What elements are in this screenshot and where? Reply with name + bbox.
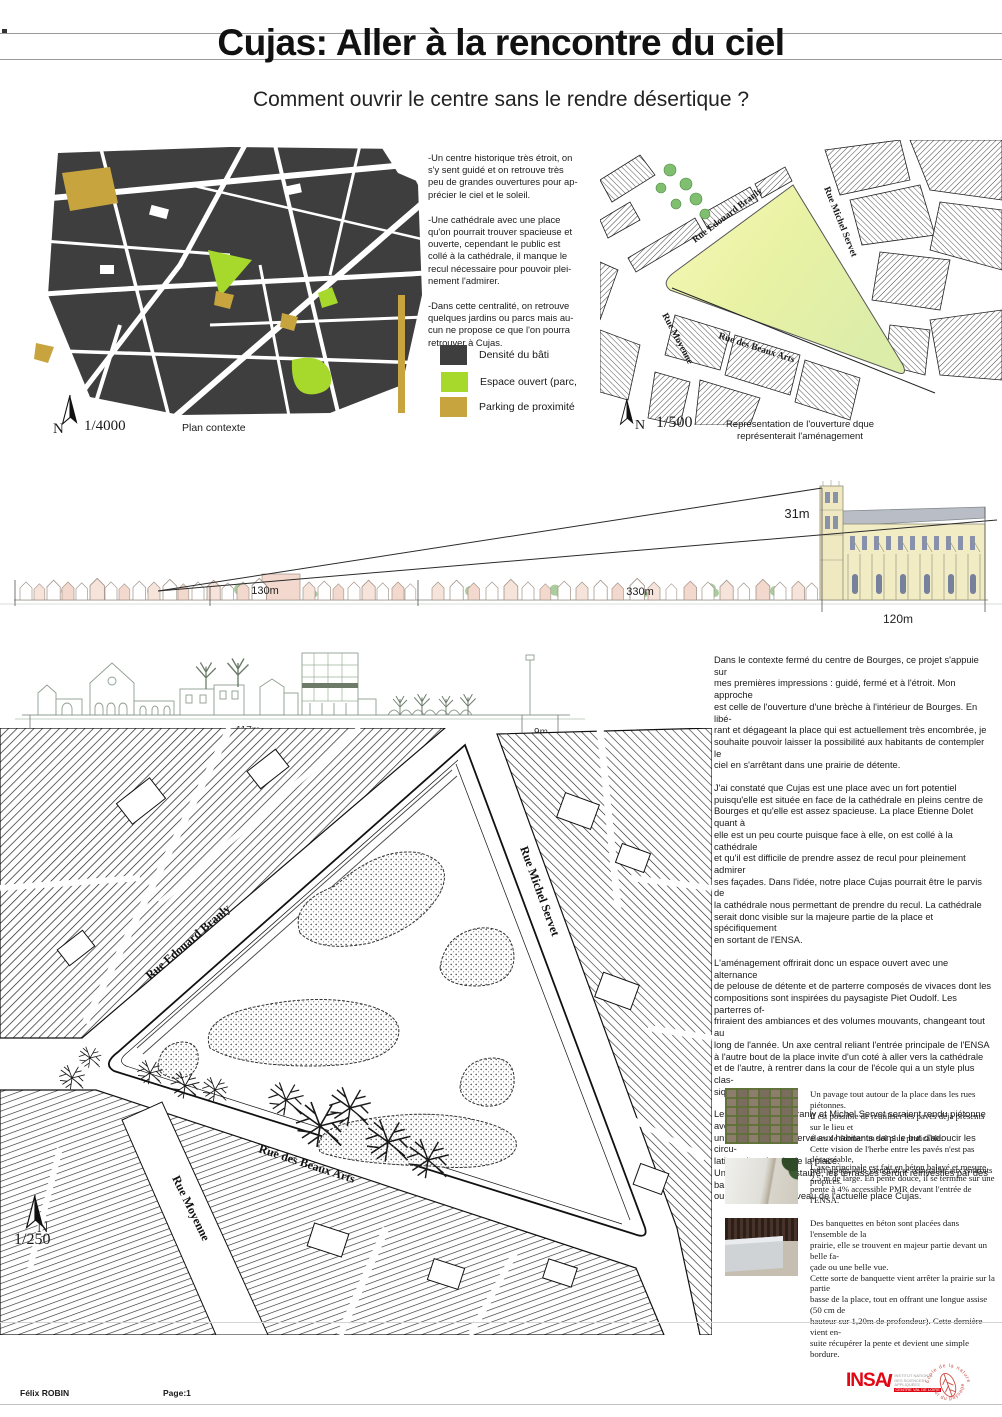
insa-acronym: INSA [846, 1372, 887, 1390]
stamp-text-bottom: et du paysage [933, 1383, 966, 1402]
map-caption: Plan contexte [182, 422, 246, 434]
context-map [30, 145, 426, 421]
intro-note: -Une cathédrale avec une place qu'on pou… [428, 214, 580, 287]
svg-text:École de la nature: École de la nature [923, 1363, 971, 1384]
intro-note: -Dans cette centralité, on retrouve quel… [428, 300, 580, 349]
author-name: Félix ROBIN [20, 1388, 69, 1398]
paragraph: J'ai constaté que Cujas est une place av… [714, 783, 994, 947]
north-label: N [635, 418, 645, 434]
cobblestone-paving-photo [725, 1088, 798, 1144]
legend-label: Parking de proximité [479, 397, 575, 413]
built-swatch [440, 345, 467, 365]
dimension-labels: 31m 130m 330m 120m [251, 506, 913, 626]
intro-note: -Un centre historique très étroit, on s'… [428, 152, 580, 201]
svg-text:et du paysage: et du paysage [933, 1383, 966, 1402]
legend-item-built: Densité du bâti [440, 345, 549, 365]
scale-label: 1/4000 [84, 418, 126, 435]
trees [656, 164, 710, 219]
legend-item-parking: Parking de proximité [440, 397, 575, 417]
legend-item-open: Espace ouvert (parc, [441, 372, 577, 392]
north-arrow-icon [617, 398, 637, 426]
school-stamp-icon: École de la nature et du paysage [921, 1358, 975, 1412]
dim-130m: 130m [251, 585, 279, 597]
dim-31m: 31m [784, 506, 809, 521]
section-drawing [15, 653, 585, 719]
page-number: Page:1 [163, 1388, 191, 1398]
paragraph: Dans le contexte fermé du centre de Bour… [714, 655, 994, 772]
opening-map: Rue Edouard Branly Rue Michel Servet Rue… [600, 140, 1002, 425]
dim-330m: 330m [626, 586, 654, 598]
concrete-path-photo [725, 1158, 798, 1204]
parking-swatch [440, 397, 467, 417]
poster-sheet: Cujas: Aller à la rencontre du ciel Comm… [0, 0, 1002, 1417]
map-caption: Représentation de l'ouverture dque repré… [690, 419, 910, 442]
concrete-bench-photo [725, 1218, 798, 1276]
dim-120m: 120m [883, 612, 913, 626]
divider-line [0, 1404, 1002, 1405]
legend-label: Densité du bâti [479, 345, 549, 361]
scale-label: 1/500 [656, 414, 692, 432]
stamp-text-top: École de la nature [923, 1363, 971, 1384]
detail-text-axis: L'axe principale est fait en béton balay… [810, 1162, 996, 1206]
intro-notes: -Un centre historique très étroit, on s'… [428, 152, 580, 362]
bench-block [725, 1236, 783, 1272]
insa-tick-icon [887, 1374, 893, 1387]
page-subtitle: Comment ouvrir le centre sans le rendre … [0, 88, 1002, 112]
street-elevation-houses [20, 574, 817, 600]
detail-text-bench: Des banquettes en béton sont placées dan… [810, 1218, 996, 1360]
open-swatch [441, 372, 468, 392]
scale-label: 1/250 [14, 1231, 50, 1249]
master-plan: Rue Edouard Branly Rue Michel Servet Rue… [0, 728, 712, 1335]
paragraph: L'aménagement offrirait donc un espace o… [714, 958, 994, 1098]
cathedral-section: 31m 130m 330m 120m [0, 480, 1002, 630]
cathedral-elevation [820, 480, 985, 600]
page-title: Cujas: Aller à la rencontre du ciel [0, 22, 1002, 64]
divider-line [0, 1322, 1002, 1323]
legend-label: Espace ouvert (parc, [480, 372, 577, 388]
north-label: N [53, 421, 64, 438]
